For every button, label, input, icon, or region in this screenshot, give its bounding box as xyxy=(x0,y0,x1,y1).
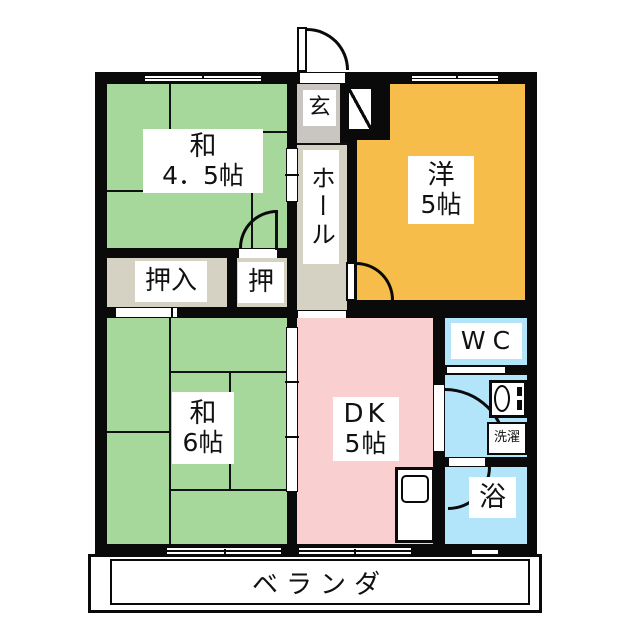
room-name: 和 xyxy=(190,398,217,429)
room-size: 6帖 xyxy=(183,429,224,458)
sliding-door-tick xyxy=(171,307,173,318)
shoe-cabinet-diagonal xyxy=(349,89,371,129)
washing-machine-control xyxy=(517,387,522,396)
room-name: 和 xyxy=(190,131,217,162)
label-dk: DK 5帖 xyxy=(333,397,399,461)
tatami-line xyxy=(171,489,287,491)
label-oshi: 押 xyxy=(238,262,284,303)
sliding-door-washitsu6-dk xyxy=(286,327,298,492)
sliding-door-tick xyxy=(285,436,299,438)
room-name: 押 xyxy=(248,268,274,298)
room-name: 玄 xyxy=(308,95,330,120)
wc-doorway-gap xyxy=(447,366,505,374)
room-size: 5帖 xyxy=(345,430,388,459)
label-laundry: 洗濯 xyxy=(487,422,527,455)
room-youshitsu-5-upper xyxy=(390,84,525,140)
sliding-door-tick xyxy=(285,381,299,383)
label-washitsu-6: 和 6帖 xyxy=(172,392,234,464)
label-wc: WC xyxy=(451,323,522,359)
label-bath: 浴 xyxy=(469,477,516,518)
washing-machine-drum xyxy=(494,385,510,412)
hall-dk-opening xyxy=(298,311,346,318)
washroom-doorway-gap xyxy=(434,385,444,451)
room-name: 押入 xyxy=(145,267,197,297)
window-mid-line xyxy=(412,78,498,80)
label-youshitsu-5: 洋 5帖 xyxy=(408,156,474,224)
kitchen-sink-basin xyxy=(401,475,429,503)
floorplan: 和 4．5帖 玄 ホール 洋 5帖 押入 押 和 6帖 DK 5帖 WC 洗濯 … xyxy=(0,0,640,640)
label-oshiire: 押入 xyxy=(135,261,207,302)
washing-machine-control xyxy=(517,400,522,410)
window-tick xyxy=(456,72,458,79)
label-washitsu-4-5: 和 4．5帖 xyxy=(143,129,263,193)
tatami-line xyxy=(169,318,171,544)
entrance-door-leaf xyxy=(297,27,307,72)
room-name: 浴 xyxy=(479,482,506,513)
bath-doorway-gap xyxy=(449,458,485,466)
room-name: ホール xyxy=(307,165,336,249)
closet-doorway-gap xyxy=(239,249,277,258)
label-hall: ホール xyxy=(303,150,339,264)
sliding-door-tick xyxy=(285,174,299,176)
label-veranda: ベランダ xyxy=(240,568,400,604)
tatami-line xyxy=(169,84,171,132)
tatami-line xyxy=(107,431,169,433)
entrance-door-arc xyxy=(307,28,349,70)
room-name: ベランダ xyxy=(252,571,388,601)
room-size: 5帖 xyxy=(421,191,462,220)
room-name: 洋 xyxy=(428,160,455,191)
room-size: 4．5帖 xyxy=(162,162,244,191)
genkan-step-line xyxy=(297,143,347,145)
entrance-doorway-gap xyxy=(300,73,345,83)
room-name: 洗濯 xyxy=(494,431,520,446)
room-name: DK xyxy=(343,400,388,430)
window-tick xyxy=(202,72,204,79)
label-genkan: 玄 xyxy=(303,90,336,126)
youshitsu-door-leaf xyxy=(346,262,356,301)
sliding-door-oshiire xyxy=(115,307,178,318)
room-name: WC xyxy=(461,327,517,356)
